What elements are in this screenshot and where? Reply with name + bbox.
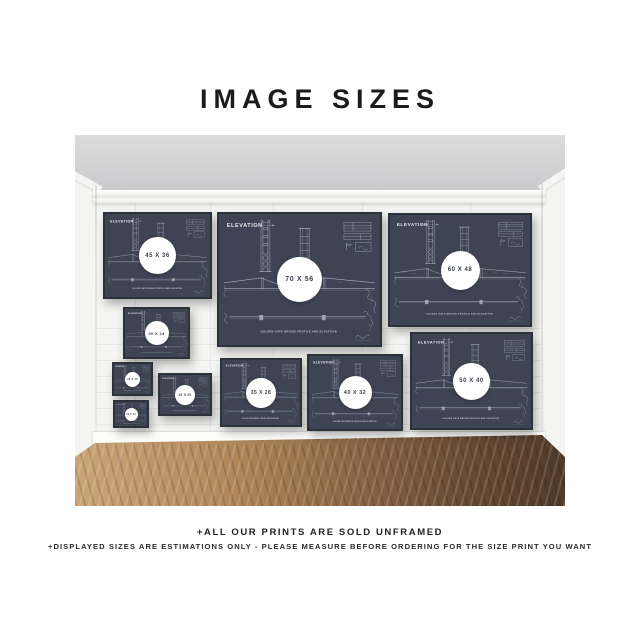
size-label: 25 X 20	[178, 393, 191, 397]
print-frame-20x16: 20 X 16	[112, 362, 153, 396]
print-frame-40x32: 40 X 32	[307, 354, 403, 431]
size-badge: 35 X 28	[246, 378, 276, 408]
print-frame-45x36: 45 X 36	[103, 212, 212, 299]
size-label: 16 X 12	[126, 413, 136, 416]
size-badge: 40 X 32	[339, 376, 372, 409]
size-badge: 70 X 56	[277, 257, 322, 302]
print-frame-70x56: 70 X 56	[217, 212, 382, 347]
print-frame-25x20: 25 X 20	[158, 373, 212, 416]
size-label: 30 X 24	[148, 331, 164, 336]
size-badge: 50 X 40	[453, 363, 490, 400]
print-frame-30x24: 30 X 24	[123, 307, 190, 359]
size-label: 50 X 40	[459, 378, 483, 384]
footer-note-unframed: +ALL OUR PRINTS ARE SOLD UNFRAMED	[0, 527, 640, 538]
size-badge: 25 X 20	[175, 385, 195, 405]
size-label: 60 X 48	[448, 267, 472, 273]
wall-corner-right	[541, 183, 543, 445]
size-badge: 60 X 48	[441, 251, 480, 290]
footer-note-measure: +DISPLAYED SIZES ARE ESTIMATIONS ONLY - …	[0, 542, 640, 551]
print-frame-50x40: 50 X 40	[410, 332, 533, 430]
size-label: 35 X 28	[251, 390, 271, 396]
room-photo: 45 X 36 70 X 56 60 X 48 30 X 24 20 X 16 …	[75, 135, 565, 506]
size-badge: 16 X 12	[125, 408, 138, 421]
size-label: 20 X 16	[127, 378, 138, 381]
size-label: 45 X 36	[145, 253, 169, 259]
print-frame-35x28: 35 X 28	[220, 358, 302, 427]
crown-molding	[93, 190, 545, 203]
size-badge: 45 X 36	[139, 237, 176, 274]
page-title: IMAGE SIZES	[0, 84, 640, 115]
print-frame-16x12: 16 X 12	[113, 400, 149, 428]
size-badge: 30 X 24	[145, 321, 169, 345]
size-label: 70 X 56	[285, 276, 314, 283]
print-frame-60x48: 60 X 48	[388, 213, 532, 327]
size-badge: 20 X 16	[125, 372, 140, 387]
product-image: IMAGE SIZES 45 X 36 70 X 56 60 X 48	[0, 0, 640, 640]
size-label: 40 X 32	[344, 390, 366, 396]
